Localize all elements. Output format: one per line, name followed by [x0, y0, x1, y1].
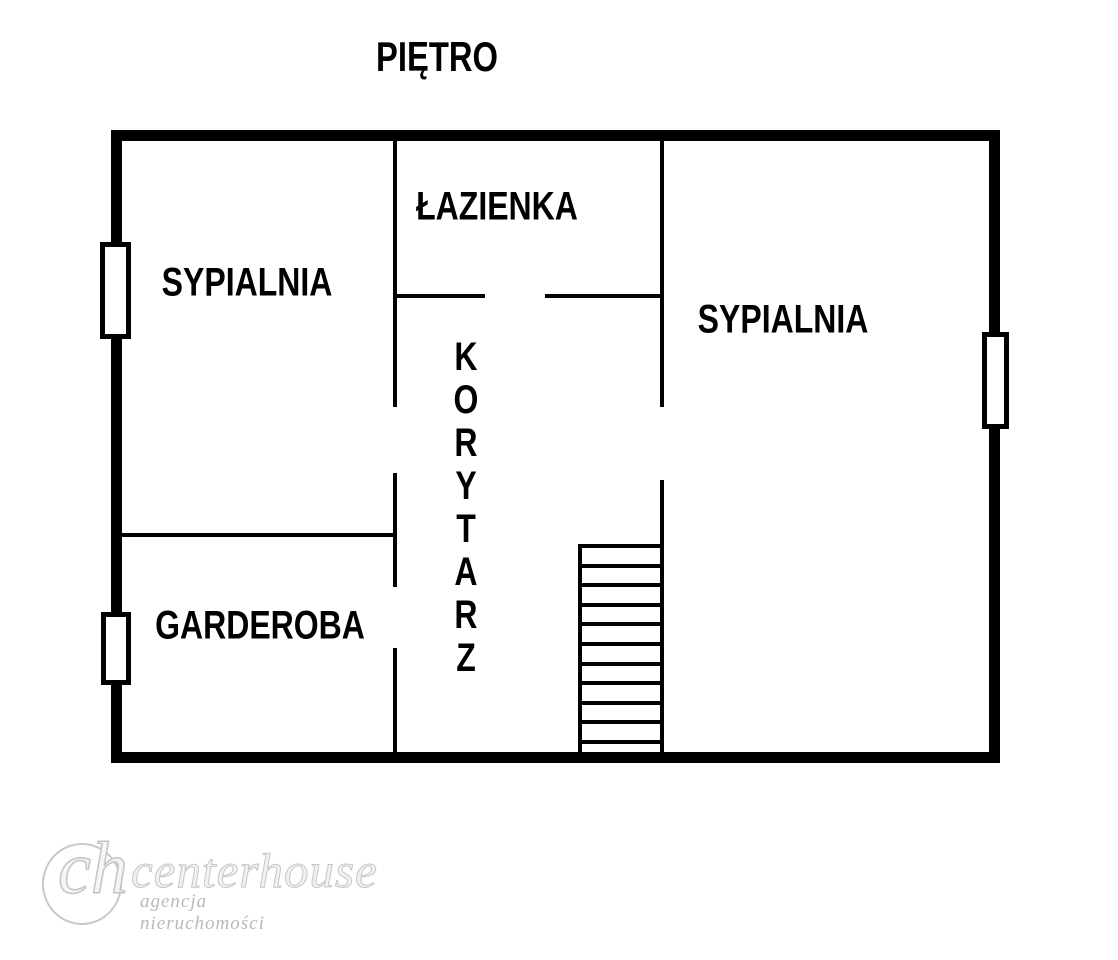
room-label-bedroom-right: SYPIALNIA: [698, 298, 869, 343]
outer-wall-bottom: [111, 752, 1000, 763]
floor-title: PIĘTRO: [376, 33, 498, 81]
room-label-corridor: KORYTARZ: [450, 336, 481, 680]
logo-name: centerhouse: [131, 846, 378, 895]
logo-tagline: agencja nieruchomości: [140, 891, 265, 935]
wall-corridor-left-lower: [393, 648, 397, 752]
room-label-bathroom: ŁAZIENKA: [416, 185, 578, 230]
room-label-wardrobe: GARDEROBA: [155, 604, 365, 649]
outer-wall-right: [989, 130, 1000, 763]
window-right: [982, 332, 1009, 429]
window-left-upper: [100, 242, 131, 339]
window-left-lower: [101, 612, 131, 685]
wall-bathroom-bottom-right: [545, 294, 664, 298]
wall-bathroom-left: [393, 141, 397, 294]
outer-wall-top: [111, 130, 1000, 141]
stairs: [578, 544, 664, 752]
wall-corridor-left-mid: [393, 473, 397, 587]
room-label-bedroom-left: SYPIALNIA: [162, 261, 333, 306]
floor-plan: PIĘTRO SYPIALNIA ŁAZIENKA SYPIALNIA GARD…: [0, 0, 1118, 960]
wall-bathroom-bottom-left: [393, 294, 485, 298]
wall-corridor-left-upper: [393, 298, 397, 407]
wall-wardrobe-top: [122, 533, 397, 537]
wall-middle-upper: [660, 141, 664, 407]
logo-monogram: ch: [58, 832, 128, 906]
